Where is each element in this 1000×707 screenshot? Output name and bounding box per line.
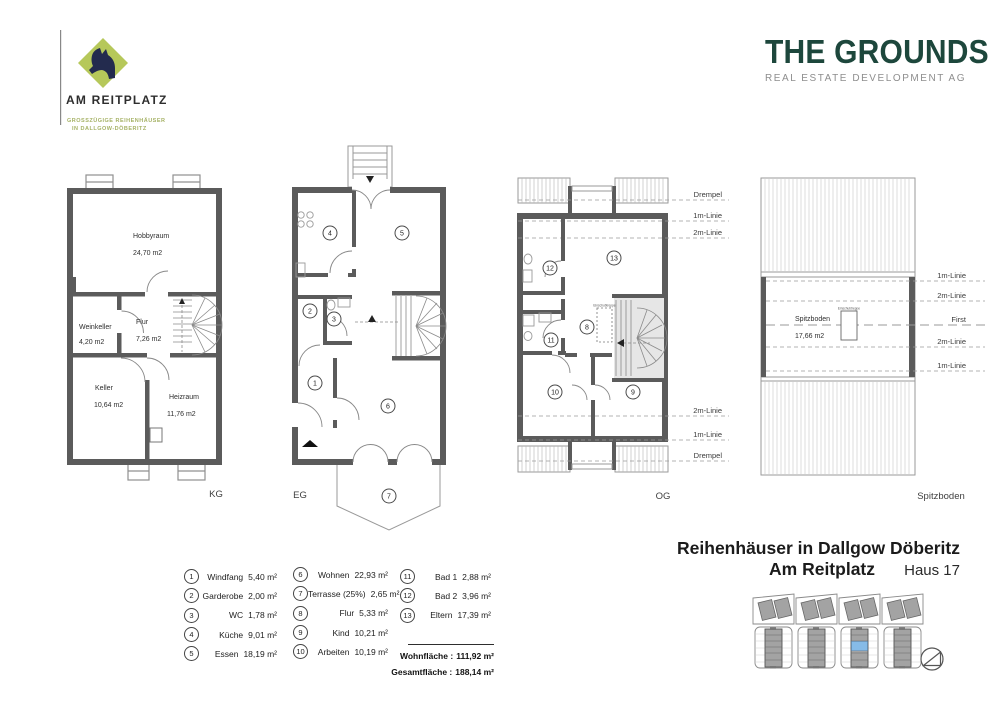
og-line-label: 2m-Linie [693,228,722,237]
spitzboden-right-wall [909,277,915,377]
the-grounds-logo: THE GROUNDS REAL ESTATE DEVELOPMENT AG [765,34,965,84]
og-line-label: Drempel [694,190,723,199]
legend-room-area: 2,88 m² [462,572,491,582]
og-line-label: Drempel [694,451,723,460]
project-title: Reihenhäuser in Dallgow Döberitz [660,538,960,559]
legend-room-name: Essen [215,649,239,659]
spitzboden-left-wall [761,277,766,377]
house-number: Haus 17 [800,562,960,579]
legend-number-badge: 6 [293,567,308,582]
room-label: Heizraum [169,394,199,401]
spitzboden-line-label: First [951,315,966,324]
legend-number-badge: 2 [184,588,199,603]
legend-room-area: 2,65 m² [371,589,400,599]
gesamtflaeche-value: 188,14 m² [455,664,494,680]
legend-number-badge: 11 [400,569,415,584]
room-number: 9 [631,390,635,397]
og-stairs [614,298,667,378]
legend-room-name: Terrasse (25%) [308,589,366,599]
room-label: Flur [136,319,149,326]
legend-item: 4 Küche 9,01 m² [184,625,277,644]
spitzboden-floor-plan: Einschubtreppe [761,178,985,475]
legend-number-badge: 10 [293,644,308,659]
legend-room-area: 3,96 m² [462,591,491,601]
legend-item: 12 Bad 2 3,96 m² [400,586,491,605]
legend-number-badge: 7 [293,586,308,601]
og-line-label: 2m-Linie [693,406,722,415]
room-number: 3 [332,317,336,324]
spitzboden-floor-label: Spitzboden [917,491,965,502]
legend-number-badge: 13 [400,608,415,623]
tagline-line-1: GROSSZÜGIGE REIHENHÄUSER [67,118,165,126]
eg-floor-label: EG [293,490,307,501]
legend-room-area: 17,39 m² [457,610,491,620]
room-label: Weinkeller [79,324,112,331]
legend-item: 9 Kind 10,21 m² [293,623,388,642]
area-totals: Wohnfläche : 111,92 m² Gesamtfläche : 18… [408,644,494,680]
legend-room-name: Eltern [430,610,452,620]
legend-room-area: 18,19 m² [243,649,277,659]
legend-item: 8 Flur 5,33 m² [293,604,388,623]
legend-number-badge: 4 [184,627,199,642]
room-area: 11,76 m2 [167,411,196,418]
legend-number-badge: 3 [184,608,199,623]
spitzboden-line-label: 1m-Linie [937,271,966,280]
legend-item: 3 WC 1,78 m² [184,606,277,625]
legend-room-name: Bad 2 [435,591,457,601]
site-plan [753,594,943,670]
spitzboden-line-label: 1m-Linie [937,361,966,370]
legend-room-name: Kind [332,628,349,638]
room-area: 24,70 m2 [133,250,162,257]
room-number: 11 [547,338,554,345]
site-garages [758,598,921,621]
legend-room-name: Flur [340,608,355,618]
wohnflaeche-total: Wohnfläche : 111,92 m² [408,648,494,664]
am-reitplatz-logo-icon [78,38,128,88]
north-arrow-icon [921,648,943,670]
room-area: 4,20 m2 [79,339,104,346]
spitzboden-line-label: 2m-Linie [937,337,966,346]
am-reitplatz-tagline: GROSSZÜGIGE REIHENHÄUSER IN DALLGOW-DÖBE… [67,118,165,133]
legend-room-name: Windfang [207,572,243,582]
room-area: 7,26 m2 [136,336,161,343]
legend-room-name: Bad 1 [435,572,457,582]
spitzboden-line-label: 2m-Linie [937,291,966,300]
floor-plan-sheet: Einschubtreppe Einsc [0,0,1000,707]
legend-item: 7 Terrasse (25%) 2,65 m² [293,584,388,603]
spitzboden-loft-hatch-outline [841,311,857,340]
tagline-line-2: IN DALLGOW-DÖBERITZ [67,126,165,134]
og-line-label: 1m-Linie [693,430,722,439]
legend-number-badge: 8 [293,606,308,621]
eg-floor-plan [291,146,446,530]
legend-room-area: 1,78 m² [248,610,277,620]
room-number: 10 [551,390,559,397]
legend-number-badge: 1 [184,569,199,584]
legend-item: 5 Essen 18,19 m² [184,644,277,663]
og-floor-plan: Einschubtreppe [518,178,729,472]
legend-column-3: 11 Bad 1 2,88 m² 12 Bad 2 3,96 m² 13 Elt… [400,567,491,625]
room-number: 5 [400,231,404,238]
room-number: 8 [585,325,589,332]
legend-item: 13 Eltern 17,39 m² [400,606,491,625]
the-grounds-subtitle: REAL ESTATE DEVELOPMENT AG [765,73,965,84]
legend-room-area: 22,93 m² [354,570,388,580]
legend-item: 2 Garderobe 2,00 m² [184,586,277,605]
room-area: 17,66 m2 [795,333,824,340]
legend-room-area: 10,21 m² [354,628,388,638]
legend-room-name: Küche [219,630,243,640]
room-number: 1 [313,381,317,388]
legend-item: 1 Windfang 5,40 m² [184,567,277,586]
logo-image-edge [60,30,61,125]
spitzboden-height-line-labels: 1m-Linie 2m-Linie First 2m-Linie 1m-Lini… [937,271,967,370]
legend-number-badge: 9 [293,625,308,640]
legend-room-area: 5,40 m² [248,572,277,582]
legend-room-name: Arbeiten [318,647,350,657]
room-area: 10,64 m2 [94,402,123,409]
og-loft-hatch-label: Einschubtreppe [593,304,615,308]
legend-room-name: Wohnen [318,570,350,580]
room-label: Keller [95,385,114,392]
room-label: Spitzboden [795,316,830,323]
gesamtflaeche-total: Gesamtfläche : 188,14 m² [408,664,494,680]
legend-room-area: 2,00 m² [248,591,277,601]
gesamtflaeche-label: Gesamtfläche : [391,664,452,680]
wohnflaeche-value: 111,92 m² [456,648,494,664]
og-line-label: 1m-Linie [693,211,722,220]
room-number: 2 [308,309,312,316]
the-grounds-name: THE GROUNDS [765,34,965,72]
room-number: 13 [610,256,618,263]
legend-room-name: Garderobe [203,591,244,601]
room-label: Hobbyraum [133,233,169,240]
kg-floor-label: KG [209,489,223,500]
legend-room-area: 5,33 m² [359,608,388,618]
legend-item: 10 Arbeiten 10,19 m² [293,642,388,661]
am-reitplatz-brand-name: AM REITPLATZ [66,93,168,107]
site-highlighted-house-17 [852,642,868,651]
legend-column-2: 6 Wohnen 22,93 m² 7 Terrasse (25%) 2,65 … [293,565,388,661]
room-number: 4 [328,231,332,238]
og-height-line-labels: Drempel 1m-Linie 2m-Linie 2m-Linie 1m-Li… [693,190,722,460]
legend-item: 6 Wohnen 22,93 m² [293,565,388,584]
legend-room-area: 10,19 m² [354,647,388,657]
spitzboden-room [766,278,909,377]
legend-number-badge: 5 [184,646,199,661]
legend-item: 11 Bad 1 2,88 m² [400,567,491,586]
room-number: 12 [546,266,554,273]
og-floor-label: OG [656,491,671,502]
wohnflaeche-label: Wohnfläche : [400,648,453,664]
legend-number-badge: 12 [400,588,415,603]
room-number: 6 [386,404,390,411]
spitzboden-loft-hatch-label: Einschubtreppe [838,307,860,311]
room-number: 7 [387,494,391,501]
legend-column-1: 1 Windfang 5,40 m² 2 Garderobe 2,00 m² 3… [184,567,277,663]
legend-room-name: WC [229,610,243,620]
legend-room-area: 9,01 m² [248,630,277,640]
